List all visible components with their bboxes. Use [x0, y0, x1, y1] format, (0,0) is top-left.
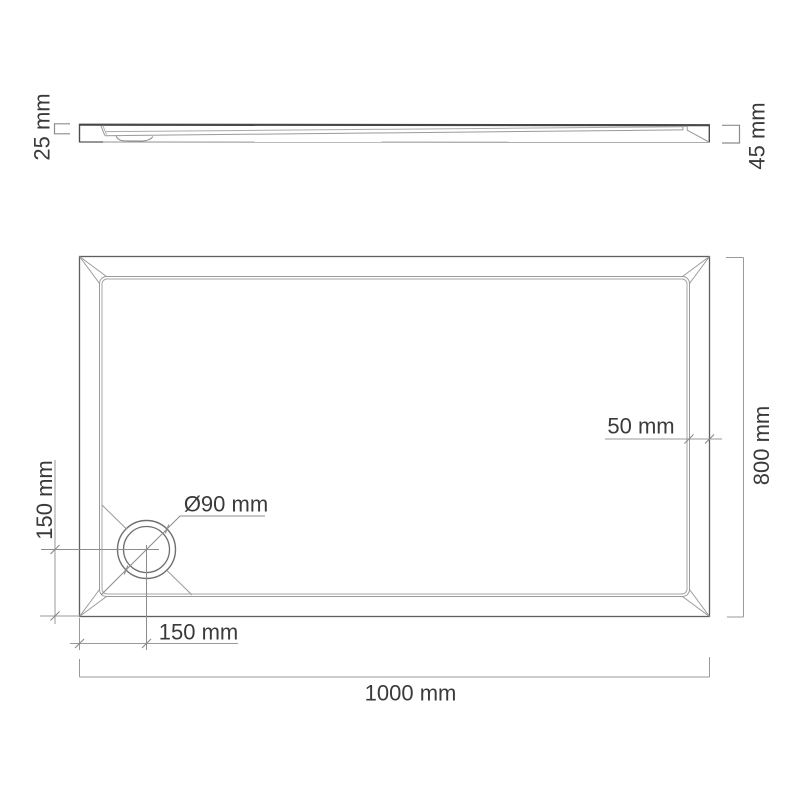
svg-text:25 mm: 25 mm	[30, 93, 55, 160]
svg-text:50 mm: 50 mm	[607, 414, 674, 439]
svg-text:150 mm: 150 mm	[159, 620, 238, 645]
svg-text:Ø90 mm: Ø90 mm	[184, 492, 268, 517]
svg-text:800 mm: 800 mm	[749, 406, 774, 485]
svg-text:150 mm: 150 mm	[32, 460, 57, 539]
svg-text:1000 mm: 1000 mm	[365, 681, 457, 706]
svg-text:45 mm: 45 mm	[745, 102, 770, 169]
